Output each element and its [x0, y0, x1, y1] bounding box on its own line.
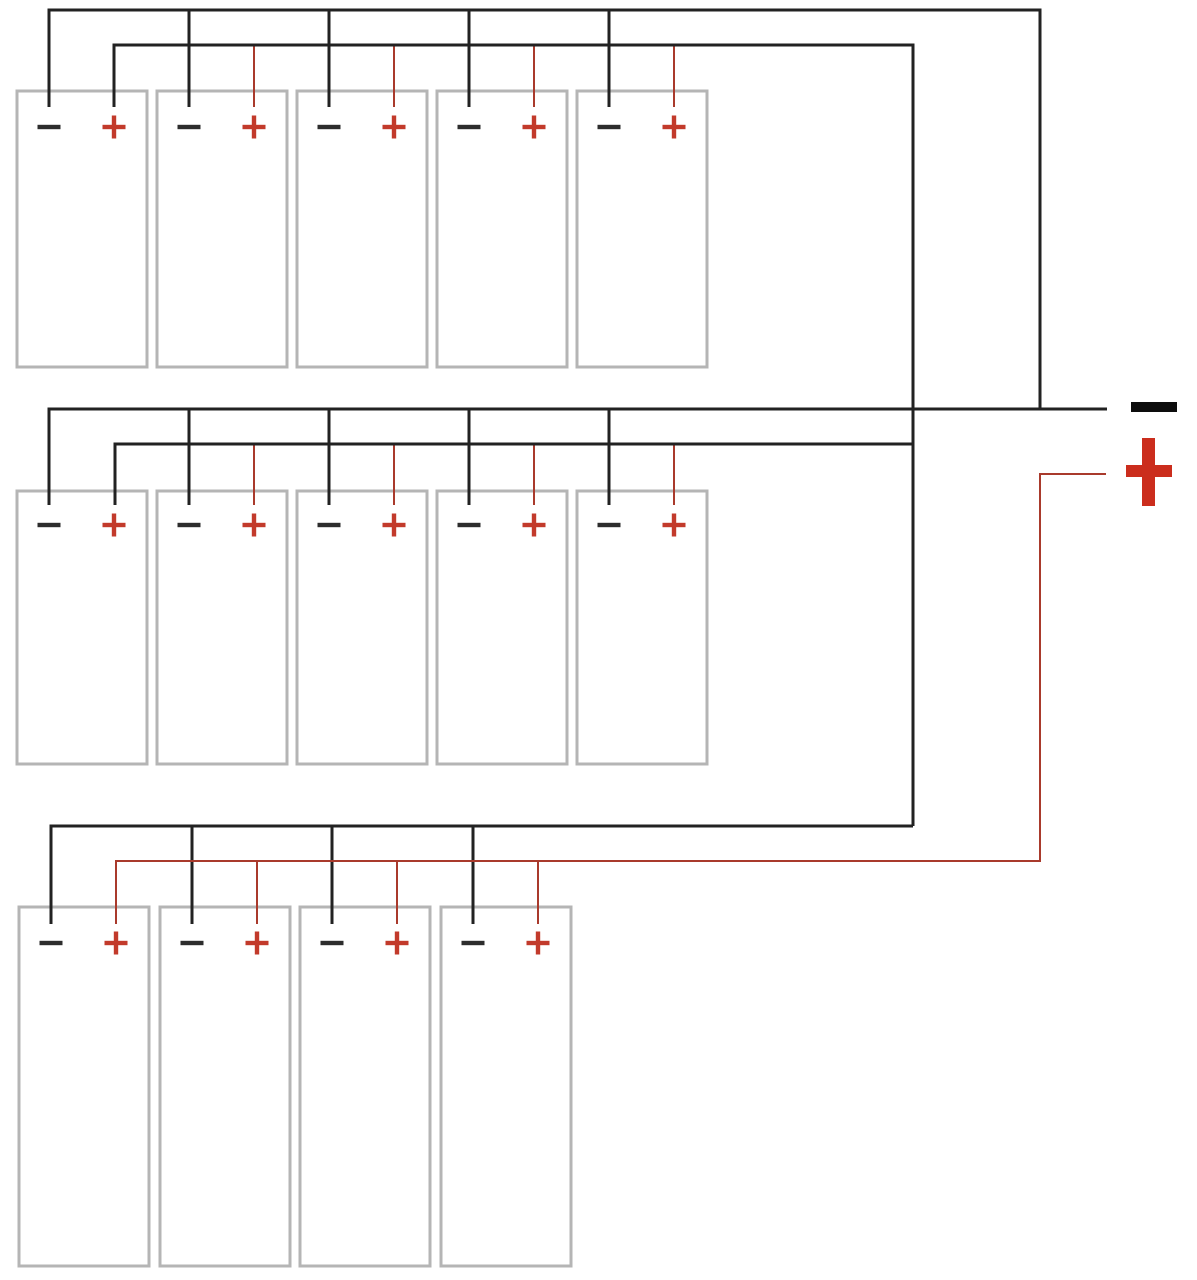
plus-terminal-sign-v — [672, 514, 676, 537]
battery-cell — [17, 91, 147, 367]
plus-terminal-sign-v — [672, 116, 676, 139]
minus-terminal-sign — [178, 523, 201, 527]
plus-terminal-sign-v — [112, 514, 116, 537]
minus-terminal-sign — [458, 125, 481, 129]
parallel-group-2 — [17, 409, 707, 764]
minus-terminal-sign — [40, 941, 63, 945]
parallel-group-3 — [19, 826, 571, 1266]
minus-terminal-sign — [458, 523, 481, 527]
output-minus-symbol — [1131, 402, 1177, 412]
output-terminals — [1126, 402, 1177, 506]
battery-cell — [157, 91, 287, 367]
battery-cell — [19, 907, 149, 1266]
plus-terminal-sign-v — [252, 116, 256, 139]
plus-terminal-sign-v — [392, 514, 396, 537]
plus-terminal-sign-v — [112, 116, 116, 139]
minus-terminal-sign — [38, 125, 61, 129]
battery-cell — [17, 491, 147, 764]
minus-terminal-sign — [318, 523, 341, 527]
battery-wiring-diagram-page — [0, 0, 1197, 1280]
battery-cell — [577, 491, 707, 764]
battery-cell — [300, 907, 430, 1266]
battery-cell — [577, 91, 707, 367]
minus-terminal-sign — [462, 941, 485, 945]
battery-cell — [441, 907, 571, 1266]
parallel-group-1 — [17, 10, 707, 367]
plus-terminal-sign-v — [392, 116, 396, 139]
minus-terminal-sign — [178, 125, 201, 129]
battery-cell — [157, 491, 287, 764]
plus-terminal-sign-v — [395, 932, 399, 955]
minus-terminal-sign — [181, 941, 204, 945]
battery-cell — [297, 91, 427, 367]
plus-terminal-sign-v — [114, 932, 118, 955]
output-plus-symbol — [1126, 438, 1172, 506]
plus-terminal-sign-v — [532, 514, 536, 537]
battery-cell — [297, 491, 427, 764]
battery-cell — [437, 91, 567, 367]
plus-terminal-sign-v — [252, 514, 256, 537]
minus-terminal-sign — [38, 523, 61, 527]
plus-terminal-sign-v — [532, 116, 536, 139]
battery-cell — [160, 907, 290, 1266]
output-plus-symbol-v — [1142, 438, 1155, 506]
plus-terminal-sign-v — [255, 932, 259, 955]
wiring-diagram — [0, 0, 1197, 1280]
minus-terminal-sign — [321, 941, 344, 945]
minus-terminal-sign — [598, 523, 621, 527]
battery-cell — [437, 491, 567, 764]
minus-terminal-sign — [318, 125, 341, 129]
plus-terminal-sign-v — [536, 932, 540, 955]
minus-terminal-sign — [598, 125, 621, 129]
